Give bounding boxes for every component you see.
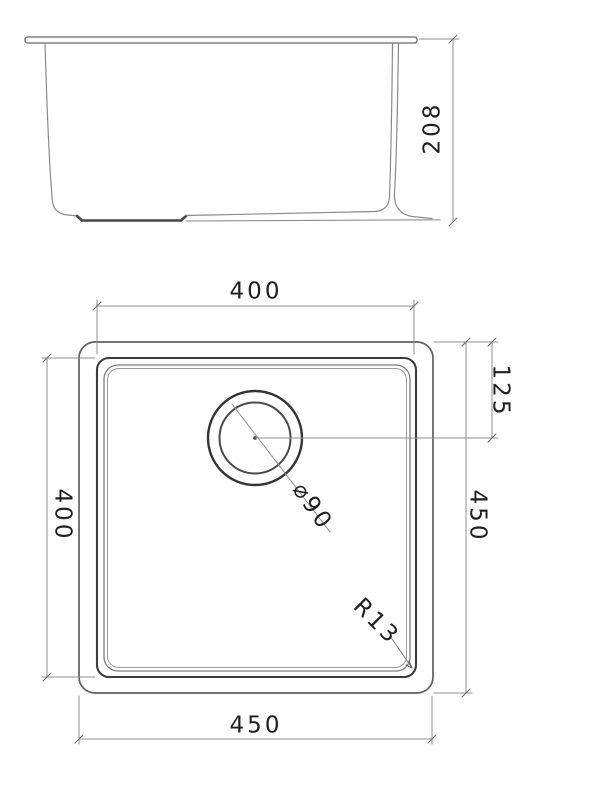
dimension-top-width-400 (93, 300, 418, 354)
dimension-label-top-width: 400 (230, 281, 283, 304)
side-elevation-view (25, 35, 459, 226)
sink-technical-drawing: 208 400 125 400 450 ⌀90 R13 450 (0, 0, 605, 800)
rim-bar (25, 37, 417, 43)
left-wall (45, 43, 78, 216)
dimension-drain-offset-125 (255, 338, 498, 442)
dimension-label-depth: 208 (422, 102, 445, 155)
drawing-linework (0, 0, 605, 800)
dimension-label-left-height: 400 (51, 489, 74, 542)
dimension-label-right-height: 450 (466, 490, 489, 543)
dimension-label-drain-offset: 125 (489, 365, 512, 418)
plan-view (42, 300, 498, 744)
dimension-label-bottom-width: 450 (230, 715, 283, 738)
inner-bottom-and-right-wall (186, 43, 393, 216)
outer-bottom-edge (186, 220, 440, 221)
drain-pad (77, 216, 186, 221)
